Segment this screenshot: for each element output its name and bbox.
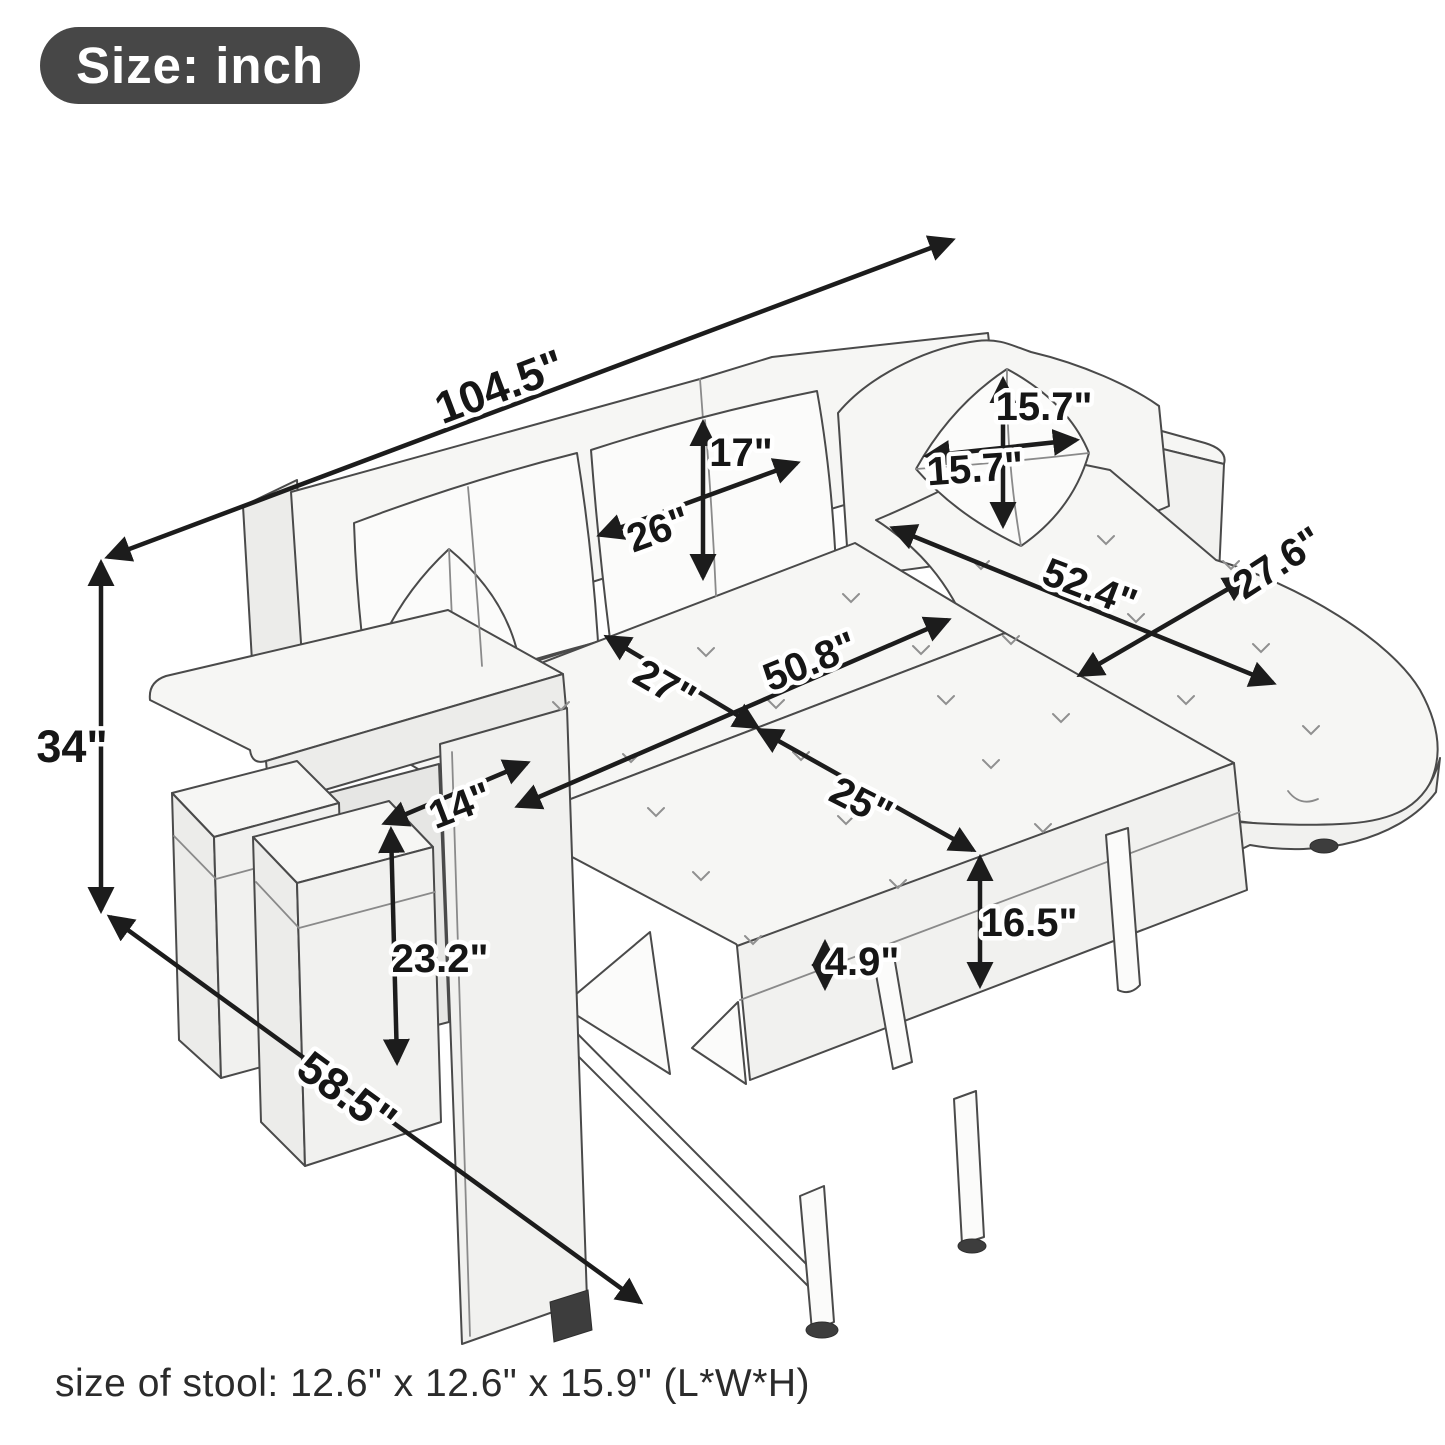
dimension-mattress-thickness: 4.9" — [825, 940, 900, 987]
size-unit-badge: Size: inch — [40, 27, 360, 104]
bed-foot — [958, 1239, 986, 1253]
bed-leg — [800, 1186, 834, 1331]
dimension-label: 15.7" — [925, 444, 1025, 495]
stool-size-note: size of stool: 12.6" x 12.6" x 15.9" (L*… — [55, 1362, 810, 1406]
sofa-dimension-diagram: 104.5"34"58.5"17"26"15.7"15.7"52.4"27.6"… — [0, 0, 1445, 1445]
dimension-label: 34" — [36, 721, 107, 772]
bed-foot — [806, 1322, 838, 1338]
dimension-label: 23.2" — [392, 937, 489, 981]
dimension-label: 16.5" — [981, 901, 1078, 945]
bed-leg — [954, 1091, 984, 1244]
chaise-foot — [1310, 839, 1338, 853]
dimension-label: 17" — [709, 431, 772, 475]
frame-truss — [692, 1002, 746, 1084]
sofa-illustration — [150, 333, 1440, 1344]
dimension-label: 15.7" — [996, 385, 1093, 429]
dimension-overall-height: 34" — [36, 563, 107, 910]
dimension-label: 4.9" — [825, 940, 900, 984]
size-diagram-page: 104.5"34"58.5"17"26"15.7"15.7"52.4"27.6"… — [0, 0, 1445, 1445]
